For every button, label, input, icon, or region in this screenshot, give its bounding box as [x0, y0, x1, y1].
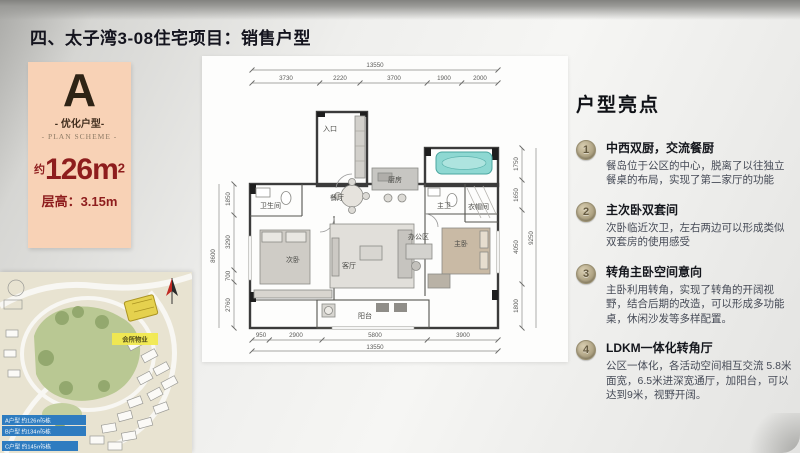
plan-subtitle: - 优化户型-: [28, 115, 131, 130]
floor-height: 层高：3.15m: [28, 191, 131, 210]
room-entrance: 入口: [323, 125, 337, 133]
dim-bottom-2: 2900: [289, 332, 303, 339]
highlight-item-2: 2 主次卧双套间 次卧临近次卫，左右两边可以形成类似双套房的使用感受: [576, 201, 792, 250]
highlights-panel: 户型亮点 1 中西双厨，交流餐厨 餐岛位于公区的中心，脱离了以往独立餐桌的布局，…: [576, 90, 792, 416]
highlight-title-2: 主次卧双套间: [606, 201, 792, 218]
dim-right-3: 4050: [513, 240, 520, 254]
highlight-item-3: 3 转角主卧空间意向 主卧利用转角，实现了转角的开阔视野，结合后期的改造，可以形…: [576, 263, 792, 326]
dim-bottom-4: 3900: [456, 332, 470, 339]
highlight-body-1: 中西双厨，交流餐厨 餐岛位于公区的中心，脱离了以往独立餐桌的布局，实现了第二家厅…: [606, 139, 792, 188]
highlight-body-3: 转角主卧空间意向 主卧利用转角，实现了转角的开阔视野，结合后期的改造，可以形成多…: [606, 263, 792, 326]
number-badge-2: 2: [576, 202, 596, 222]
dim-top-3: 3700: [387, 75, 401, 82]
dim-bottom-total: 13550: [366, 344, 384, 351]
map-building-tag-label: 会所物业: [122, 335, 148, 344]
number-badge-4: 4: [576, 340, 596, 360]
dim-right-1: 1750: [513, 157, 520, 171]
highlight-body-4: LDKM一体化转角厅 公区一体化，各活动空间相互交流 5.8米面宽，6.5米进深…: [606, 339, 792, 402]
highlight-item-4: 4 LDKM一体化转角厅 公区一体化，各活动空间相互交流 5.8米面宽，6.5米…: [576, 339, 792, 402]
room-closet: 衣帽间: [468, 202, 489, 211]
dimension-chain-left: 8600 1850 3290 700 2760: [210, 182, 237, 331]
dim-left-3: 700: [225, 270, 232, 281]
dimension-chain-right: 1750 1650 4050 1800 9250: [513, 146, 536, 331]
dimension-chain-bottom: 950 2900 5800 3900 13550: [250, 332, 501, 354]
map-legend: A户型 约126㎡5栋 B户型 约134㎡5栋 C户型 约145㎡5栋: [2, 415, 86, 451]
dim-right-2: 1650: [513, 188, 520, 202]
room-master-bedroom: 主卧: [454, 239, 468, 248]
area-prefix: 约: [34, 164, 45, 176]
highlight-desc-2: 次卧临近次卫，左右两边可以形成类似双套房的使用感受: [606, 221, 792, 250]
corner-shade: [740, 413, 800, 453]
highlight-title-1: 中西双厨，交流餐厨: [606, 139, 792, 156]
highlight-title-3: 转角主卧空间意向: [606, 263, 792, 280]
highlights-title: 户型亮点: [576, 90, 792, 117]
legend-line-2: B户型 约134㎡5栋: [5, 428, 51, 436]
dim-top-total: 13550: [366, 62, 384, 69]
room-dining: 餐厅: [330, 193, 344, 202]
legend-line-3: C户型 约145㎡5栋: [5, 443, 51, 451]
floor-plan-panel: 13550 3730 2220 3700 1900 2000: [202, 56, 568, 362]
room-office: 办公区: [408, 232, 429, 241]
dim-top-5: 2000: [473, 75, 487, 82]
dim-left-total: 8600: [210, 249, 217, 263]
dim-left-2: 3290: [225, 235, 232, 249]
room-kitchen: 厨房: [388, 175, 402, 184]
highlight-desc-3: 主卧利用转角，实现了转角的开阔视野，结合后期的改造，可以形成多功能桌，休闲沙发等…: [606, 283, 792, 326]
dimension-chain-top: 13550 3730 2220 3700 1900 2000: [250, 62, 501, 86]
dim-top-2: 2220: [333, 75, 347, 82]
dim-left-1: 1850: [225, 192, 232, 206]
dim-bottom-3: 5800: [368, 332, 382, 339]
dim-bottom-1: 950: [256, 332, 267, 339]
legend-line-1: A户型 约126㎡5栋: [5, 417, 51, 425]
site-map: 会所物业 A户型 约126㎡5栋 B户型 约134㎡5栋 C户型 约145㎡5栋: [0, 272, 192, 453]
slide: 四、太子湾3-08住宅项目：销售户型 A - 优化户型- - PLAN SCHE…: [0, 0, 800, 453]
area-sup: 2: [118, 161, 125, 176]
plan-subtitle-en: - PLAN SCHEME -: [28, 132, 131, 141]
highlight-desc-4: 公区一体化，各活动空间相互交流 5.8米面宽，6.5米进深宽通厅，加阳台，可以达…: [606, 359, 792, 402]
highlight-title-4: LDKM一体化转角厅: [606, 339, 792, 356]
floor-plan-drawing: 13550 3730 2220 3700 1900 2000: [202, 56, 568, 362]
number-badge-3: 3: [576, 264, 596, 284]
number-badge-1: 1: [576, 140, 596, 160]
room-balcony: 阳台: [358, 311, 372, 320]
highlight-body-2: 主次卧双套间 次卧临近次卫，左右两边可以形成类似双套房的使用感受: [606, 201, 792, 250]
plan-type-badge: A - 优化户型- - PLAN SCHEME - 约126m2 层高：3.15…: [28, 62, 131, 248]
map-building-tag: 会所物业: [112, 333, 158, 345]
plan-letter: A: [28, 66, 131, 114]
room-bedroom2: 次卧: [286, 255, 300, 264]
highlight-item-1: 1 中西双厨，交流餐厨 餐岛位于公区的中心，脱离了以往独立餐桌的布局，实现了第二…: [576, 139, 792, 188]
dim-top-4: 1900: [437, 75, 451, 82]
dim-top-1: 3730: [279, 75, 293, 82]
site-map-drawing: 会所物业 A户型 约126㎡5栋 B户型 约134㎡5栋 C户型 约145㎡5栋: [0, 272, 192, 453]
highlight-desc-1: 餐岛位于公区的中心，脱离了以往独立餐桌的布局，实现了第二家厅的功能: [606, 159, 792, 188]
area-value: 126m: [45, 153, 118, 186]
room-bath2: 卫生间: [260, 201, 281, 210]
room-master-bath: 主卫: [437, 201, 451, 210]
plan-area: 约126m2: [28, 155, 131, 185]
dim-right-total: 9250: [528, 231, 535, 245]
page-title: 四、太子湾3-08住宅项目：销售户型: [30, 24, 311, 49]
dim-left-4: 2760: [225, 298, 232, 312]
room-living: 客厅: [342, 261, 356, 270]
dim-right-4: 1800: [513, 299, 520, 313]
